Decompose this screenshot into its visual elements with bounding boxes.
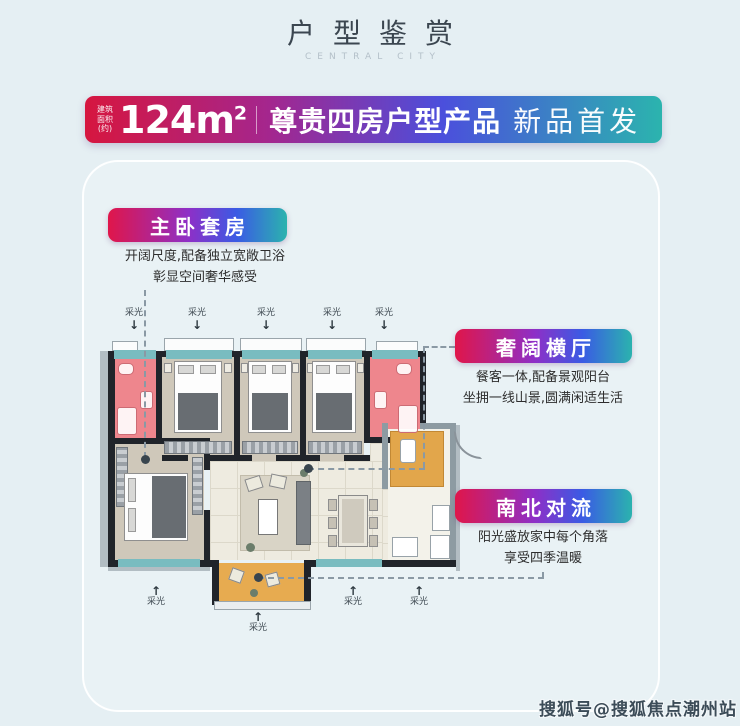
daylight-marker-bottom: ↑ 采光 bbox=[139, 585, 173, 608]
pillow bbox=[272, 365, 286, 374]
nightstand bbox=[164, 363, 172, 373]
callout-master-suite: 主卧套房 bbox=[108, 208, 287, 242]
arrow-up-icon: ↑ bbox=[348, 585, 358, 597]
balcony-wall bbox=[304, 560, 311, 605]
pillow bbox=[128, 478, 136, 502]
wardrobe bbox=[308, 441, 362, 454]
daylight-marker-top: 采光 ↓ bbox=[367, 308, 401, 331]
wall bbox=[364, 357, 370, 443]
daylight-label: 采光 bbox=[147, 597, 165, 608]
page-subtitle: CENTRAL CITY bbox=[0, 52, 740, 62]
wall bbox=[156, 357, 162, 443]
window bbox=[316, 559, 382, 567]
pillow bbox=[336, 365, 350, 374]
window bbox=[114, 350, 156, 359]
nightstand bbox=[357, 363, 364, 373]
daylight-marker-top: 采光 ↓ bbox=[249, 308, 283, 331]
arrow-down-icon: ↓ bbox=[379, 319, 389, 331]
arrow-up-icon: ↑ bbox=[253, 611, 263, 623]
sink bbox=[374, 391, 387, 409]
connector-dot-master bbox=[141, 455, 150, 464]
kitchen-counter bbox=[390, 431, 444, 487]
desc-line: 开阔尺度,配备独立宽敞卫浴 bbox=[95, 246, 315, 267]
callout-airflow: 南北对流 bbox=[455, 489, 632, 523]
area-prefix-line1: 建筑 bbox=[97, 105, 113, 115]
coffee-table bbox=[258, 499, 278, 535]
daylight-marker-bottom: ↑ 采光 bbox=[241, 611, 275, 634]
wall bbox=[162, 455, 188, 461]
area-value: 124m2 bbox=[119, 101, 246, 139]
area-prefix: 建筑 面积 (约) bbox=[97, 105, 113, 134]
door-opening bbox=[252, 455, 276, 461]
banner-headline: 尊贵四房户型产品 bbox=[269, 100, 501, 140]
daylight-label: 采光 bbox=[410, 597, 428, 608]
kitchen-cabinet bbox=[392, 537, 418, 557]
callout-living-room-desc: 餐客一体,配备景观阳台 坐拥一线山景,圆满闲适生活 bbox=[443, 367, 643, 409]
wall bbox=[204, 510, 210, 567]
outer-band bbox=[100, 351, 108, 567]
dining-chair bbox=[369, 517, 378, 529]
banner-divider bbox=[256, 106, 257, 134]
dining-chair bbox=[328, 517, 337, 529]
area-number: 124m bbox=[119, 98, 234, 142]
dining-table bbox=[338, 495, 368, 547]
pillow bbox=[252, 365, 266, 374]
dining-chair bbox=[328, 499, 337, 511]
area-prefix-line3: (约) bbox=[97, 124, 113, 134]
watermark: 搜狐号@搜狐焦点潮州站 bbox=[539, 695, 737, 720]
page-title: 户型鉴赏 bbox=[0, 12, 740, 52]
wall bbox=[300, 357, 306, 461]
pillow bbox=[200, 365, 216, 374]
toilet bbox=[396, 363, 412, 375]
balcony-railing bbox=[214, 601, 311, 610]
wardrobe bbox=[164, 441, 232, 454]
wardrobe bbox=[242, 441, 298, 454]
door-opening bbox=[320, 455, 344, 461]
connector-master-suite bbox=[144, 290, 146, 458]
connector-living-h2 bbox=[423, 346, 455, 348]
pillow bbox=[178, 365, 194, 374]
plant bbox=[250, 589, 258, 597]
headline-banner: 建筑 面积 (约) 124m2 尊贵四房户型产品 新品首发 bbox=[85, 96, 662, 143]
callout-living-room: 奢阔横厅 bbox=[455, 329, 632, 363]
pillow bbox=[316, 365, 330, 374]
wall bbox=[276, 455, 320, 461]
daylight-marker-top: 采光 ↓ bbox=[180, 308, 214, 331]
desc-line: 享受四季温暖 bbox=[443, 548, 643, 569]
blanket bbox=[178, 393, 218, 430]
arrow-up-icon: ↑ bbox=[414, 585, 424, 597]
blanket bbox=[252, 393, 288, 430]
connector-airflow-h bbox=[258, 577, 544, 579]
nightstand bbox=[292, 363, 299, 373]
window bbox=[372, 350, 418, 359]
arrow-down-icon: ↓ bbox=[192, 319, 202, 331]
connector-living-h bbox=[308, 468, 425, 470]
poster: 户型鉴赏 CENTRAL CITY 建筑 面积 (约) 124m2 尊贵四房户型… bbox=[0, 0, 740, 726]
kitchen-sink bbox=[400, 439, 416, 463]
balcony-wall bbox=[212, 560, 219, 605]
daylight-marker-bottom: ↑ 采光 bbox=[336, 585, 370, 608]
window bbox=[242, 350, 300, 359]
window bbox=[308, 350, 362, 359]
window bbox=[166, 350, 232, 359]
shower bbox=[117, 407, 137, 435]
desc-line: 坐拥一线山景,圆满闲适生活 bbox=[443, 388, 643, 409]
desc-line: 彰显空间奢华感受 bbox=[95, 267, 315, 288]
wall bbox=[208, 455, 252, 461]
plant bbox=[246, 543, 255, 552]
hallway bbox=[370, 443, 382, 461]
dining-chair bbox=[369, 499, 378, 511]
daylight-label: 采光 bbox=[249, 623, 267, 634]
area-prefix-line2: 面积 bbox=[97, 115, 113, 125]
nightstand bbox=[241, 363, 248, 373]
nightstand bbox=[224, 363, 232, 373]
daylight-label: 采光 bbox=[344, 597, 362, 608]
daylight-marker-top: 采光 ↓ bbox=[315, 308, 349, 331]
callout-airflow-desc: 阳光盛放家中每个角落 享受四季温暖 bbox=[443, 527, 643, 569]
dining-chair bbox=[328, 535, 337, 547]
wall bbox=[382, 423, 388, 489]
blanket bbox=[152, 476, 186, 538]
arrow-up-icon: ↑ bbox=[151, 585, 161, 597]
dresser bbox=[192, 457, 203, 515]
wall bbox=[234, 357, 240, 461]
connector-living-v bbox=[423, 347, 425, 468]
area-superscript: 2 bbox=[234, 102, 246, 124]
wall bbox=[344, 455, 370, 461]
connector-dot-living bbox=[304, 464, 313, 473]
daylight-marker-bottom: ↑ 采光 bbox=[402, 585, 436, 608]
arrow-down-icon: ↓ bbox=[129, 319, 139, 331]
callout-master-suite-desc: 开阔尺度,配备独立宽敞卫浴 彰显空间奢华感受 bbox=[95, 246, 315, 288]
connector-dot-airflow bbox=[254, 573, 263, 582]
arrow-down-icon: ↓ bbox=[327, 319, 337, 331]
desc-line: 餐客一体,配备景观阳台 bbox=[443, 367, 643, 388]
toilet bbox=[118, 363, 134, 375]
desc-line: 阳光盛放家中每个角落 bbox=[443, 527, 643, 548]
window bbox=[118, 559, 200, 567]
dining-chair bbox=[369, 535, 378, 547]
wall bbox=[108, 351, 115, 567]
shower bbox=[398, 405, 418, 433]
pillow bbox=[128, 508, 136, 532]
blanket bbox=[316, 393, 352, 430]
arrow-down-icon: ↓ bbox=[261, 319, 271, 331]
sofa bbox=[296, 481, 311, 545]
banner-highlight: 新品首发 bbox=[513, 100, 641, 140]
sink bbox=[140, 391, 153, 409]
